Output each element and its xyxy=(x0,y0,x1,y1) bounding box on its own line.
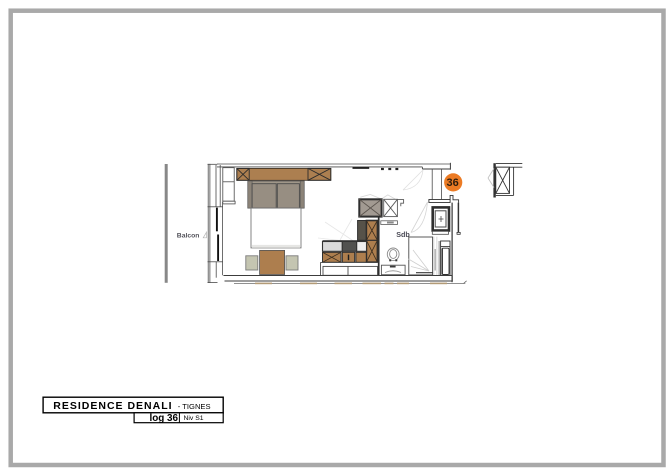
svg-text:- TIGNES: - TIGNES xyxy=(178,402,211,411)
svg-text:log 36: log 36 xyxy=(149,413,178,424)
svg-text:Niv S1: Niv S1 xyxy=(184,415,204,422)
svg-text:Balcon: Balcon xyxy=(177,233,200,240)
svg-text:RESIDENCE DENALI: RESIDENCE DENALI xyxy=(53,400,172,412)
svg-text:Sdb: Sdb xyxy=(396,230,410,239)
svg-text:36: 36 xyxy=(446,177,458,189)
